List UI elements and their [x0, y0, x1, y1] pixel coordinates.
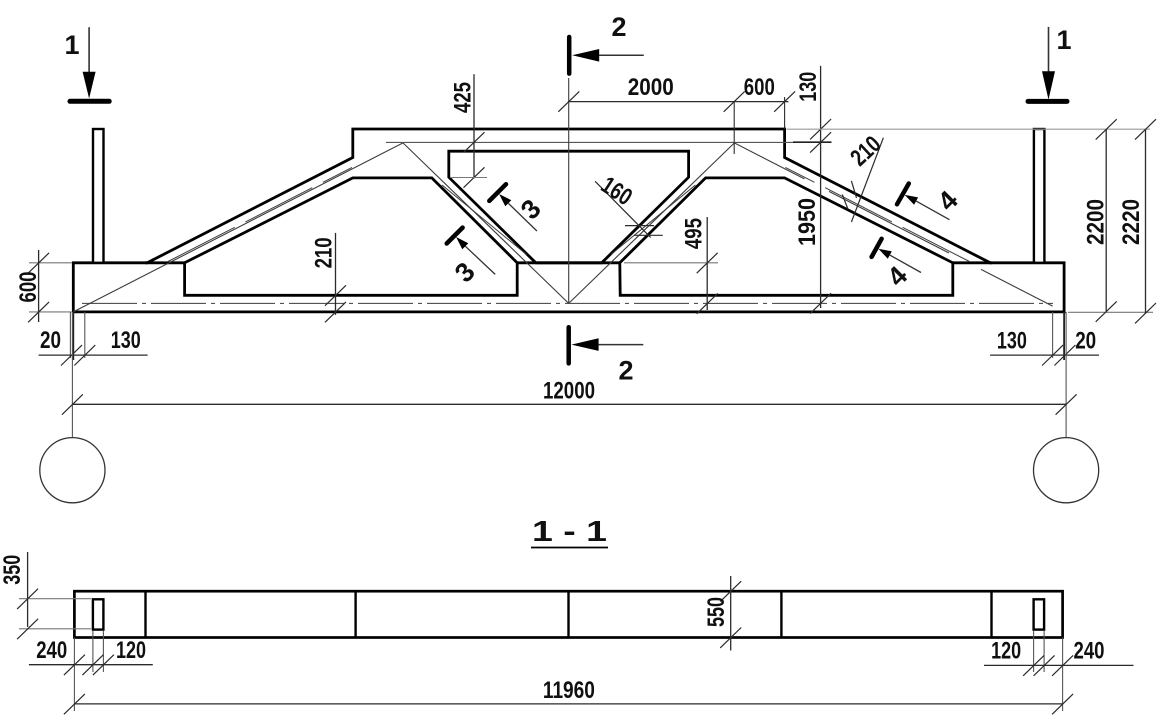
svg-text:2200: 2200	[1083, 199, 1110, 245]
svg-text:350: 350	[0, 555, 26, 585]
svg-text:130: 130	[795, 72, 822, 102]
svg-text:1: 1	[1056, 25, 1071, 55]
svg-text:120: 120	[991, 638, 1021, 665]
svg-text:240: 240	[1074, 638, 1105, 665]
svg-text:240: 240	[36, 637, 67, 664]
svg-text:1: 1	[64, 30, 79, 60]
svg-text:120: 120	[116, 637, 146, 664]
svg-text:1950: 1950	[794, 198, 821, 246]
svg-text:600: 600	[744, 74, 775, 101]
svg-text:1 - 1: 1 - 1	[532, 516, 607, 548]
svg-text:210: 210	[310, 237, 337, 268]
svg-text:12000: 12000	[543, 378, 595, 405]
svg-text:130: 130	[997, 328, 1027, 355]
svg-text:495: 495	[681, 218, 708, 249]
svg-text:2: 2	[618, 356, 633, 386]
svg-text:550: 550	[703, 597, 730, 627]
svg-text:2000: 2000	[628, 74, 674, 101]
svg-text:130: 130	[111, 327, 141, 354]
svg-text:2220: 2220	[1118, 199, 1145, 245]
svg-text:2: 2	[611, 12, 626, 42]
svg-text:20: 20	[40, 327, 61, 354]
svg-text:600: 600	[15, 272, 42, 303]
svg-text:425: 425	[449, 82, 476, 113]
svg-text:11960: 11960	[543, 677, 595, 704]
svg-text:20: 20	[1075, 328, 1096, 355]
